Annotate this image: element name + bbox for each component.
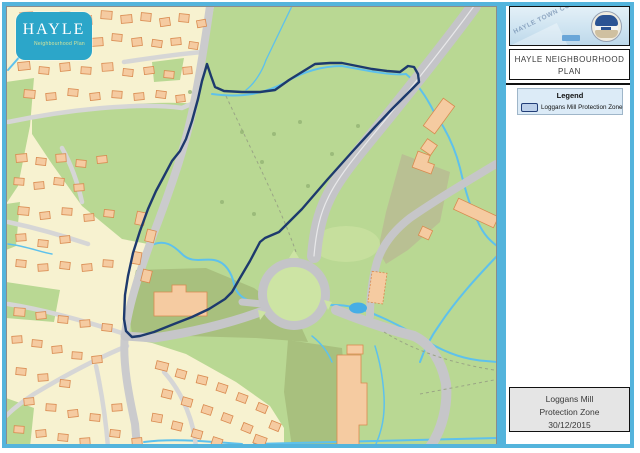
building [164,71,175,79]
building [97,155,108,163]
zone-swatch-icon [521,103,538,112]
building [132,37,143,46]
footer-line-2: Protection Zone [510,406,629,419]
map-canvas [6,6,497,447]
building [81,67,91,75]
legend-box: Legend Loggans Mill Protection Zone [517,88,623,115]
building [189,41,199,49]
plan-page: HAYLE Neighbourhood Plan HAYLE TOWN COUN… [0,0,640,453]
mill-outbuilding [347,345,363,354]
pond [349,303,367,314]
seal-top-shape [595,15,618,26]
building [18,207,30,216]
building [24,398,35,406]
building [74,184,84,192]
building [171,38,182,46]
side-panel: HAYLE TOWN COUNCIL HAYLE NEIGHBOURHOOD P… [506,6,634,447]
plan-title: HAYLE NEIGHBOURHOOD PLAN [509,49,630,80]
building [46,404,56,412]
building [14,178,24,186]
building [141,13,152,22]
building [56,154,67,163]
tree-icon [272,132,276,136]
panel-divider [497,2,506,448]
building [196,19,206,27]
footer-line-1: Loggans Mill [510,393,629,406]
building [68,409,79,417]
building [112,91,122,99]
building [16,368,27,376]
map-footer-box: Loggans Mill Protection Zone 30/12/2015 [509,387,630,432]
building [84,214,95,222]
tree-icon [220,200,224,204]
thumbnail-blue-tag [562,35,580,41]
building [112,34,123,42]
building [12,336,22,344]
building [38,264,48,272]
building [121,15,133,24]
building [16,260,27,268]
building [16,154,28,163]
building [36,312,47,320]
building [144,66,155,74]
building [46,93,57,101]
building [90,414,101,422]
council-seal-icon [591,11,622,42]
logo-title: HAYLE [16,21,92,39]
building [102,323,113,331]
building [14,426,24,434]
legend-heading: Legend [518,91,622,100]
tree-icon [240,130,244,134]
building [132,438,143,446]
building [103,260,113,268]
building [183,67,193,75]
building [58,316,69,324]
building [102,63,114,72]
building [60,236,71,244]
tree-icon [260,160,264,164]
building [60,63,71,72]
building [159,17,170,26]
building [16,234,26,242]
logo-subtitle: Neighbourhood Plan [16,41,92,47]
legend-item-label: Loggans Mill Protection Zone [541,104,623,111]
building [152,39,163,47]
building [60,261,71,269]
building [151,413,162,423]
building [36,430,47,438]
tree-icon [306,184,310,188]
building [92,355,103,363]
tree-icon [188,90,192,94]
building [76,160,87,168]
building [112,404,122,412]
building [179,14,190,23]
building [32,340,43,348]
building [18,61,31,70]
tree-icon [330,152,334,156]
building [82,264,93,272]
building [38,374,48,382]
building [40,211,51,219]
building [110,429,121,437]
building [14,308,26,317]
building [38,240,49,248]
building [24,90,36,99]
building [34,182,45,190]
building [60,379,71,387]
building [101,11,113,20]
building [134,93,145,101]
plan-title-line1: HAYLE NEIGHBOURHOOD [510,54,629,66]
building [91,38,104,47]
seal-bottom-shape [595,30,618,38]
building [39,67,50,75]
tree-icon [298,120,302,124]
map-thumbnail: HAYLE TOWN COUNCIL [509,6,630,46]
building [68,89,79,97]
building [52,346,63,354]
building [90,92,101,100]
building [80,320,90,328]
hayle-logo: HAYLE Neighbourhood Plan [16,12,92,60]
footer-line-3: 30/12/2015 [510,419,629,432]
building [156,90,167,98]
building [54,177,65,185]
map-svg [6,6,497,447]
building [123,68,134,76]
building [62,208,72,216]
building [36,157,47,165]
legend-item: Loggans Mill Protection Zone [521,103,622,112]
building [80,438,90,446]
tree-icon [356,124,360,128]
building [58,434,69,442]
building [72,352,82,360]
panel-separator [506,83,634,85]
building [104,209,115,217]
building [176,95,186,103]
tree-icon [252,212,256,216]
plan-title-line2: PLAN [510,66,629,78]
